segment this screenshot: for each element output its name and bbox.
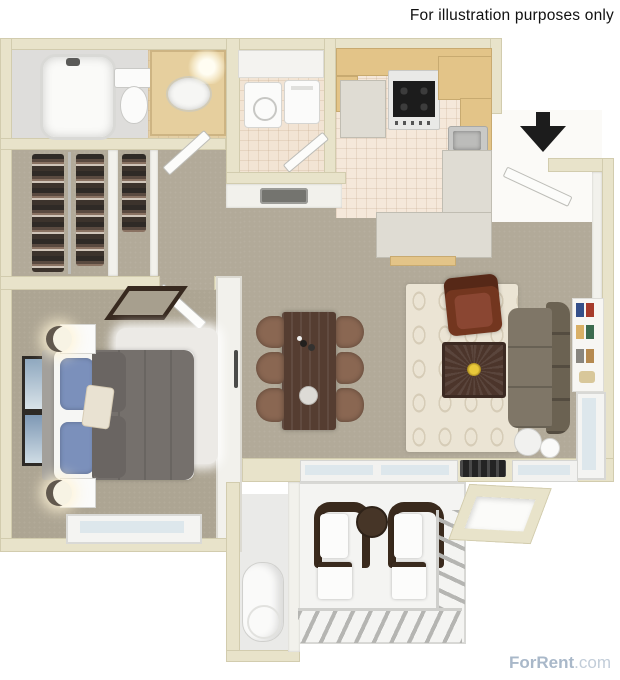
dining-table-decor-1 (300, 340, 307, 347)
sofa-side-table (514, 428, 542, 456)
dining-table-decor-3 (297, 336, 302, 341)
armchair (443, 273, 503, 336)
dryer (284, 80, 320, 124)
forrent-watermark-suffix: .com (574, 653, 611, 672)
laundry-cabinet (238, 50, 324, 78)
living-bottom-window (512, 460, 578, 482)
walkin-closet-rod (68, 152, 71, 274)
bed-accent-pillow (81, 384, 115, 429)
toilet-bowl (120, 86, 148, 124)
stove (388, 70, 440, 130)
water-heater-end (247, 605, 281, 639)
stove-controls (395, 121, 433, 125)
peninsula-wood-shelf (390, 256, 456, 266)
book-spine-4 (586, 325, 594, 339)
toilet-tank (114, 68, 152, 88)
bed-pillow-blue-bottom (60, 422, 94, 474)
coffee-table-bowl (467, 363, 481, 376)
dining-table (282, 312, 336, 430)
wall-laundry-kitchen (324, 38, 336, 174)
wall-storage-left (226, 482, 240, 662)
patio-chair-1-cushion (320, 514, 348, 558)
washer-door (253, 97, 277, 121)
patio-sliding-door-pane-1 (305, 465, 373, 475)
sofa (508, 302, 570, 434)
lamp-bottom (46, 480, 72, 506)
water-heater (242, 562, 284, 642)
floor-lamp-base (540, 438, 560, 458)
forrent-watermark: ForRent.com (509, 653, 611, 673)
kitchen-peninsula-vertical (442, 150, 492, 214)
disclaimer-text: For illustration purposes only (410, 7, 614, 25)
entry-arrow-icon-head (520, 126, 566, 152)
closet-hall-wall (150, 150, 158, 276)
patio-chair-2-cushion (394, 514, 422, 558)
patio-railing-bottom (298, 608, 462, 643)
hall-wall-vent (260, 188, 308, 204)
vanity-light-glow (188, 50, 226, 84)
washer (244, 82, 282, 128)
second-closet-clothes (122, 154, 146, 232)
dining-table-dish (299, 386, 318, 405)
book-spine-6 (586, 349, 594, 363)
dining-table-decor-2 (308, 344, 315, 351)
dining-chair-left-2 (256, 352, 284, 384)
dryer-control-slot (291, 86, 313, 90)
armchair-seat (454, 292, 493, 330)
wall-laundry-bottom (226, 172, 346, 184)
dining-chair-left-3 (256, 388, 284, 422)
bedroom-window-glass (80, 521, 184, 533)
patio-chair-2-ottoman (392, 562, 426, 599)
kitchen-sink-basin-top (453, 131, 481, 150)
shelf-decor (579, 371, 595, 383)
living-bottom-window-pane (518, 465, 570, 475)
book-spine-1 (576, 303, 584, 317)
stove-cooktop (393, 81, 435, 117)
wall-floor-grille (460, 460, 506, 477)
coffee-table (442, 342, 506, 398)
kitchen-counter-left (340, 80, 386, 138)
sofa-seat-cushions (508, 308, 552, 428)
kitchen-peninsula-horizontal (376, 212, 492, 258)
floorplan-image: For illustration purposes only ForRent.c… (0, 0, 620, 680)
book-spine-3 (576, 325, 584, 339)
walkin-closet-clothes-left (32, 154, 64, 272)
exterior-stair-inner (465, 496, 536, 531)
patio-chair-1-ottoman (318, 562, 352, 599)
closet-divider-wall (108, 150, 118, 276)
patio-table (356, 506, 388, 538)
bookshelf (572, 298, 604, 392)
dining-chair-left-1 (256, 316, 284, 348)
lamp-top (46, 326, 72, 352)
bathtub (40, 54, 116, 140)
bedroom-window (66, 514, 202, 544)
bedroom-door-handle (234, 350, 238, 388)
forrent-watermark-brand: ForRent (509, 653, 574, 672)
living-right-window-glass (582, 398, 596, 470)
book-spine-5 (576, 349, 584, 363)
kitchen-cabinet-right-top (438, 56, 492, 100)
walkin-closet-clothes-right (76, 154, 104, 266)
bathtub-faucet (66, 58, 80, 66)
wall-left (0, 38, 12, 552)
patio-sliding-door (300, 460, 458, 482)
patio-sliding-door-pane-2 (381, 465, 449, 475)
living-right-window (576, 392, 606, 480)
book-spine-2 (586, 303, 594, 317)
